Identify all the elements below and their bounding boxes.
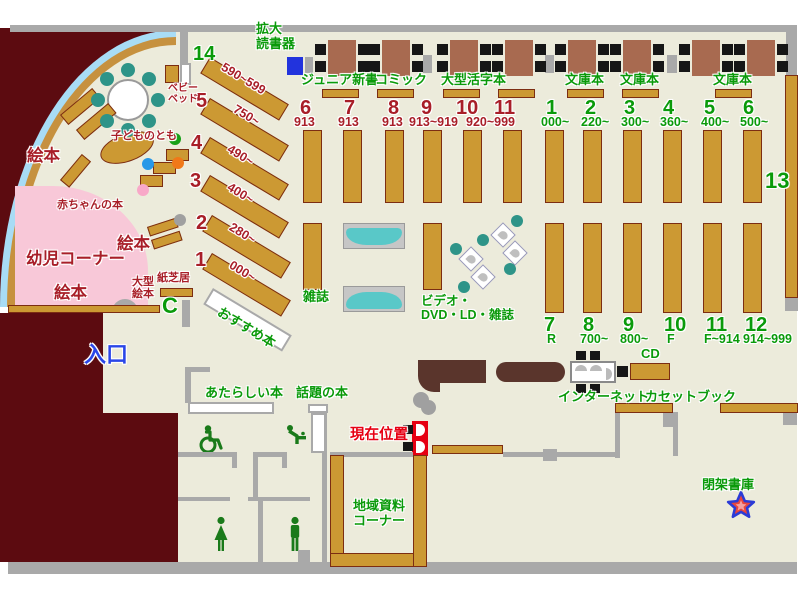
bookshelf — [623, 130, 642, 203]
label-range-913-919: 913~919 — [409, 115, 458, 129]
bookshelf — [623, 223, 642, 313]
label-chiiki-shiryo-corner: 地域資料 コーナー — [349, 499, 409, 528]
label-ogata-ehon: 大型 絵本 — [132, 276, 154, 301]
wall — [615, 412, 620, 458]
wall — [663, 412, 678, 427]
label-atarashii-hon: あたらしい本 — [205, 386, 283, 401]
chair — [653, 44, 664, 55]
bookshelf — [703, 130, 722, 203]
label-range-220: 220~ — [581, 115, 609, 129]
label-range-913a: 913 — [294, 115, 315, 129]
wall — [667, 55, 677, 73]
bookshelf — [663, 130, 682, 203]
bookshelf — [8, 305, 160, 313]
bookshelf — [545, 130, 564, 203]
label-akachan-no-hon: 赤ちゃんの本 — [57, 199, 123, 211]
bookshelf — [663, 223, 682, 313]
reading-table — [568, 40, 596, 76]
chair — [535, 61, 546, 72]
library-floor-map: 拡大 読書器ジュニア新書コミック大型活字本文庫本文庫本文庫本雑誌ビデオ・ DVD… — [0, 0, 800, 600]
label-zasshi: 雑誌 — [303, 290, 329, 305]
label-bunkobon-3: 文庫本 — [713, 73, 752, 88]
chair — [555, 44, 566, 55]
label-num-14: 14 — [193, 43, 215, 65]
chair — [369, 61, 380, 72]
white-shelf — [188, 402, 274, 414]
chair — [412, 61, 423, 72]
bookshelf — [343, 130, 362, 203]
round-table-seat — [100, 114, 114, 128]
bookshelf — [413, 455, 427, 567]
label-yoji-corner: 幼児コーナー — [26, 250, 125, 268]
dot — [413, 392, 429, 408]
bookshelf — [583, 130, 602, 203]
label-range-300: 300~ — [621, 115, 649, 129]
chair — [722, 61, 733, 72]
reading-table — [692, 40, 720, 76]
chair — [369, 44, 380, 55]
dot — [477, 234, 489, 246]
bookshelf — [703, 223, 722, 313]
chair — [598, 61, 609, 72]
round-table-seat — [142, 114, 156, 128]
label-range-000: 000~ — [541, 115, 569, 129]
label-range-400g: 400~ — [701, 115, 729, 129]
chair — [437, 44, 448, 55]
bookshelf — [60, 154, 91, 188]
label-junior-shinsho: ジュニア新書 — [301, 73, 378, 88]
generated-items: 拡大 読書器ジュニア新書コミック大型活字本文庫本文庫本文庫本雑誌ビデオ・ DVD… — [0, 0, 800, 600]
wall — [253, 452, 258, 497]
dot — [504, 263, 516, 275]
wall — [298, 550, 310, 564]
label-range-800: 800~ — [620, 332, 648, 346]
reading-table — [623, 40, 651, 76]
dot — [174, 214, 186, 226]
chair — [679, 61, 690, 72]
chair — [480, 44, 491, 55]
wall — [785, 298, 798, 311]
wall — [178, 452, 235, 457]
label-num-4l: 4 — [191, 132, 202, 154]
chair — [679, 44, 690, 55]
chair — [535, 44, 546, 55]
bookshelf — [463, 130, 482, 203]
reading-table — [505, 40, 533, 76]
label-baby-bed: ベビー ベッド — [168, 83, 198, 105]
dot — [142, 158, 154, 170]
chair — [610, 44, 621, 55]
white-shelf — [308, 404, 328, 413]
label-ogata-katsuji-bon: 大型活字本 — [441, 73, 506, 88]
chair — [315, 44, 326, 55]
dot — [511, 215, 523, 227]
label-ehon-3: 絵本 — [54, 284, 87, 302]
round-table-seat — [100, 72, 114, 86]
label-range-700: 700~ — [580, 332, 608, 346]
chair — [734, 61, 745, 72]
chair — [315, 61, 326, 72]
reading-table — [382, 40, 410, 76]
wall — [178, 497, 230, 501]
label-bunkobon-2: 文庫本 — [620, 73, 659, 88]
label-range-500: 500~ — [740, 115, 768, 129]
wall — [503, 452, 617, 457]
label-genzai-ichi: 現在位置 — [350, 427, 408, 443]
chair — [412, 44, 423, 55]
label-video-dvd-ld-zasshi: ビデオ・ DVD・LD・雑誌 — [421, 294, 514, 322]
label-range-914-999: 914~999 — [743, 332, 792, 346]
wall — [185, 367, 210, 372]
dot — [137, 184, 149, 196]
wall — [182, 300, 190, 327]
wall — [10, 25, 797, 32]
label-range-913c: 913 — [382, 115, 403, 129]
chair — [722, 44, 733, 55]
round-table-seat — [142, 72, 156, 86]
door-c-symbol: C — [162, 294, 178, 319]
dot — [450, 243, 462, 255]
wall — [543, 449, 557, 461]
bookshelf — [303, 130, 322, 203]
chair — [598, 44, 609, 55]
label-internet: インターネット — [558, 390, 649, 405]
bookshelf — [432, 445, 503, 454]
chair — [777, 61, 788, 72]
wall — [185, 367, 191, 403]
label-range-360: 360~ — [660, 115, 688, 129]
wall — [258, 500, 263, 562]
chair — [555, 61, 566, 72]
label-cassette-book: カセットブック — [645, 390, 736, 405]
bookshelf — [165, 65, 179, 83]
bookshelf — [583, 223, 602, 313]
bookshelf — [503, 130, 522, 203]
label-num-3l: 3 — [190, 170, 201, 192]
round-table-seat — [91, 93, 105, 107]
dot — [172, 157, 184, 169]
bookshelf — [385, 130, 404, 203]
wall — [232, 452, 237, 468]
wall — [282, 452, 287, 468]
bookshelf — [545, 223, 564, 313]
reading-table — [328, 40, 356, 76]
label-range-f: F — [667, 332, 675, 346]
label-ehon-1: 絵本 — [27, 147, 60, 165]
chair — [480, 61, 491, 72]
chair — [358, 44, 369, 55]
label-kakudai-dokushoki: 拡大 読書器 — [256, 22, 295, 51]
dot — [458, 281, 470, 293]
label-range-913b: 913 — [338, 115, 359, 129]
wall — [545, 55, 554, 73]
label-num-1l: 1 — [195, 249, 206, 271]
label-wadai-no-hon: 話題の本 — [296, 386, 348, 401]
label-bunkobon-1: 文庫本 — [565, 73, 604, 88]
label-iriguchi: 入口 — [84, 343, 128, 368]
label-range-r: R — [547, 332, 556, 346]
chair — [492, 61, 503, 72]
label-kamishibai: 紙芝居 — [157, 272, 190, 284]
chair — [358, 61, 369, 72]
label-kodomo-no-tomo: 子どものとも — [111, 130, 177, 142]
chair — [437, 61, 448, 72]
white-shelf — [180, 63, 191, 85]
label-cd: CD — [641, 347, 660, 362]
wall — [423, 55, 432, 73]
chair — [777, 44, 788, 55]
label-comic: コミック — [375, 73, 427, 88]
reading-table — [450, 40, 478, 76]
chair — [653, 61, 664, 72]
bookshelf — [743, 130, 762, 203]
label-range-920-999: 920~999 — [466, 115, 515, 129]
wall — [783, 412, 797, 425]
bookshelf — [423, 130, 442, 203]
bookshelf — [630, 363, 670, 380]
white-shelf — [311, 413, 326, 453]
label-heika-shoko: 閉架書庫 — [702, 478, 754, 493]
label-num-13: 13 — [765, 169, 789, 194]
bookshelf — [303, 223, 322, 290]
label-range-f914: F~914 — [704, 332, 740, 346]
wall — [305, 57, 313, 73]
label-num-2l: 2 — [196, 212, 207, 234]
chair — [734, 44, 745, 55]
round-table-seat — [151, 93, 165, 107]
reading-table — [747, 40, 775, 76]
chair — [610, 61, 621, 72]
chair — [492, 44, 503, 55]
bookshelf — [743, 223, 762, 313]
bookshelf — [423, 223, 442, 290]
bookshelf — [330, 455, 344, 567]
round-table-seat — [121, 63, 135, 77]
